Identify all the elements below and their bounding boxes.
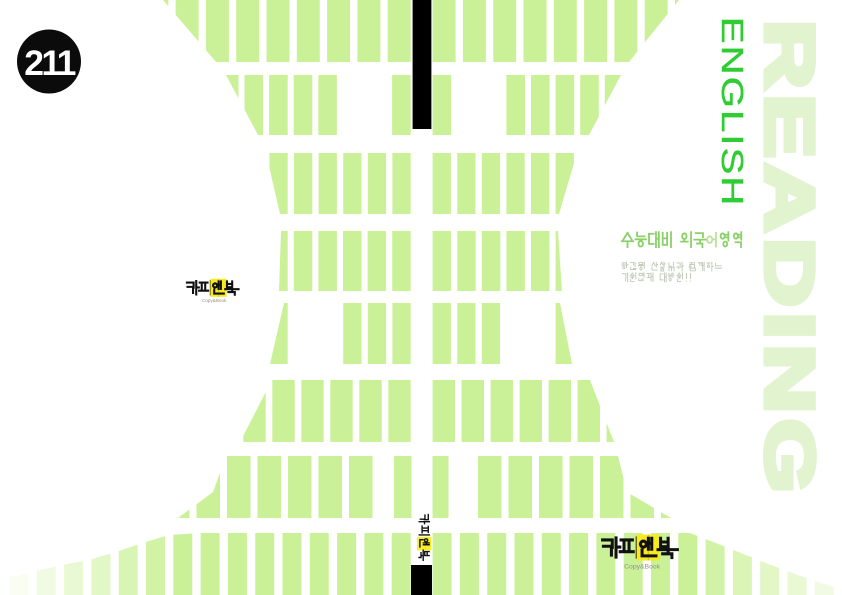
- svg-text:ENGLISH: ENGLISH: [715, 17, 750, 208]
- svg-text:Copy&Book: Copy&Book: [202, 298, 227, 303]
- svg-text:211: 211: [24, 43, 75, 83]
- svg-text:Copy&Book: Copy&Book: [624, 564, 660, 571]
- svg-text:READING: READING: [751, 20, 828, 499]
